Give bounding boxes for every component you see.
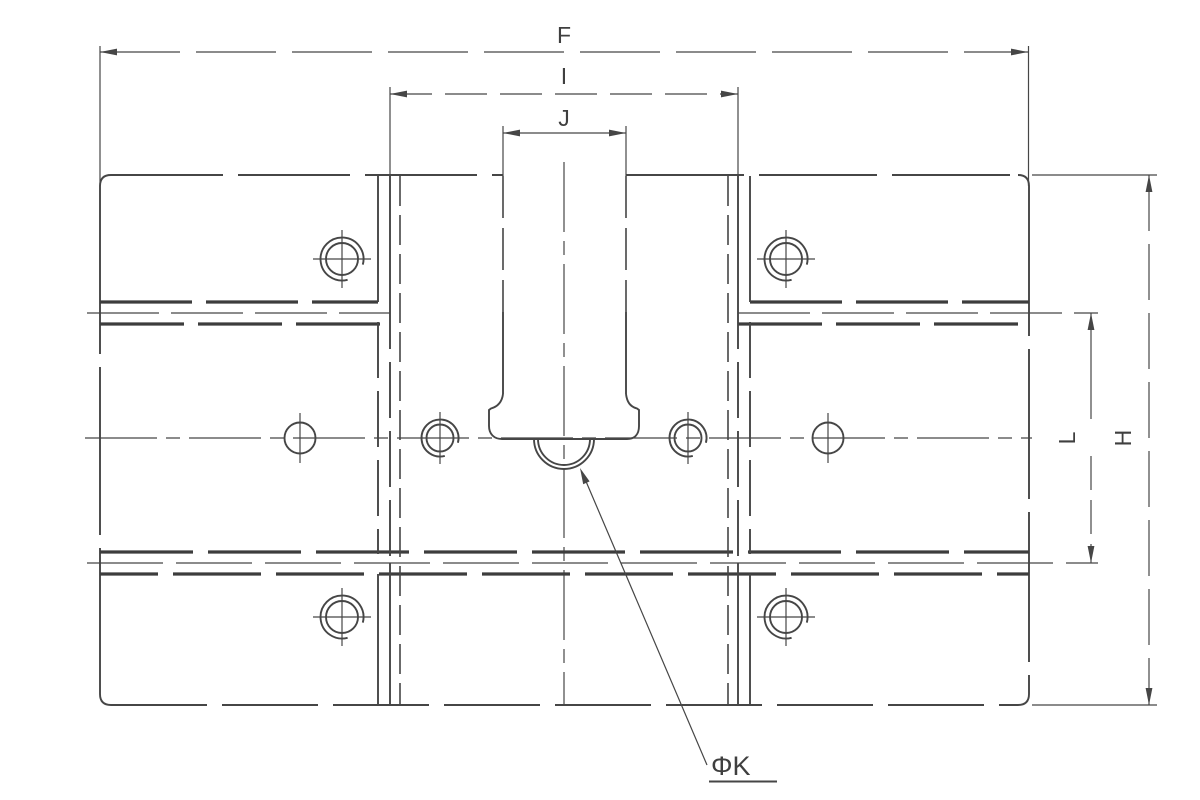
threaded-hole-bottom-left	[313, 588, 371, 646]
hole-diameter-label: ΦK	[711, 751, 751, 781]
leader-phi-k: ΦK	[580, 468, 777, 782]
corner-top-right	[1018, 175, 1029, 186]
threaded-hole-top-right	[757, 230, 815, 288]
arrowhead-right	[609, 130, 626, 137]
arrowhead-right	[721, 91, 738, 98]
leader-arrowhead	[580, 468, 590, 484]
arrowhead-bottom	[1088, 546, 1095, 563]
dimension-L: L	[1054, 313, 1094, 563]
dimension-L-label: L	[1054, 431, 1080, 444]
dimension-H: H	[1032, 175, 1157, 705]
corner-top-left	[100, 175, 111, 186]
corner-bottom-right	[1018, 694, 1029, 705]
leader-line	[582, 472, 707, 765]
dimension-F-label: F	[557, 22, 571, 48]
corner-bottom-left	[100, 694, 111, 705]
threaded-hole-center-right	[670, 412, 707, 464]
dimension-I-label: I	[561, 63, 567, 89]
threaded-hole-top-left	[313, 230, 371, 288]
dimension-F: F	[100, 22, 1029, 186]
center-lines	[85, 162, 1032, 706]
arrowhead-top	[1088, 313, 1095, 330]
inner-block-edges-left	[378, 176, 400, 704]
drawing-canvas: F I J H L ΦK	[0, 0, 1200, 800]
arrowhead-left	[503, 130, 520, 137]
arrowhead-left	[100, 49, 117, 56]
threaded-hole-bottom-right	[757, 588, 815, 646]
arrowhead-bottom	[1146, 688, 1153, 705]
upper-rail	[87, 302, 1098, 324]
arrowhead-right	[1011, 49, 1028, 56]
arrowhead-top	[1146, 175, 1153, 192]
inner-block-edges-right	[728, 176, 750, 704]
dimension-H-label: H	[1110, 430, 1136, 447]
lower-rail	[87, 552, 1098, 574]
threaded-hole-center-left	[422, 412, 459, 464]
arrowhead-left	[390, 91, 407, 98]
dimension-J-label: J	[558, 105, 570, 131]
technical-drawing: F I J H L ΦK	[0, 0, 1200, 800]
